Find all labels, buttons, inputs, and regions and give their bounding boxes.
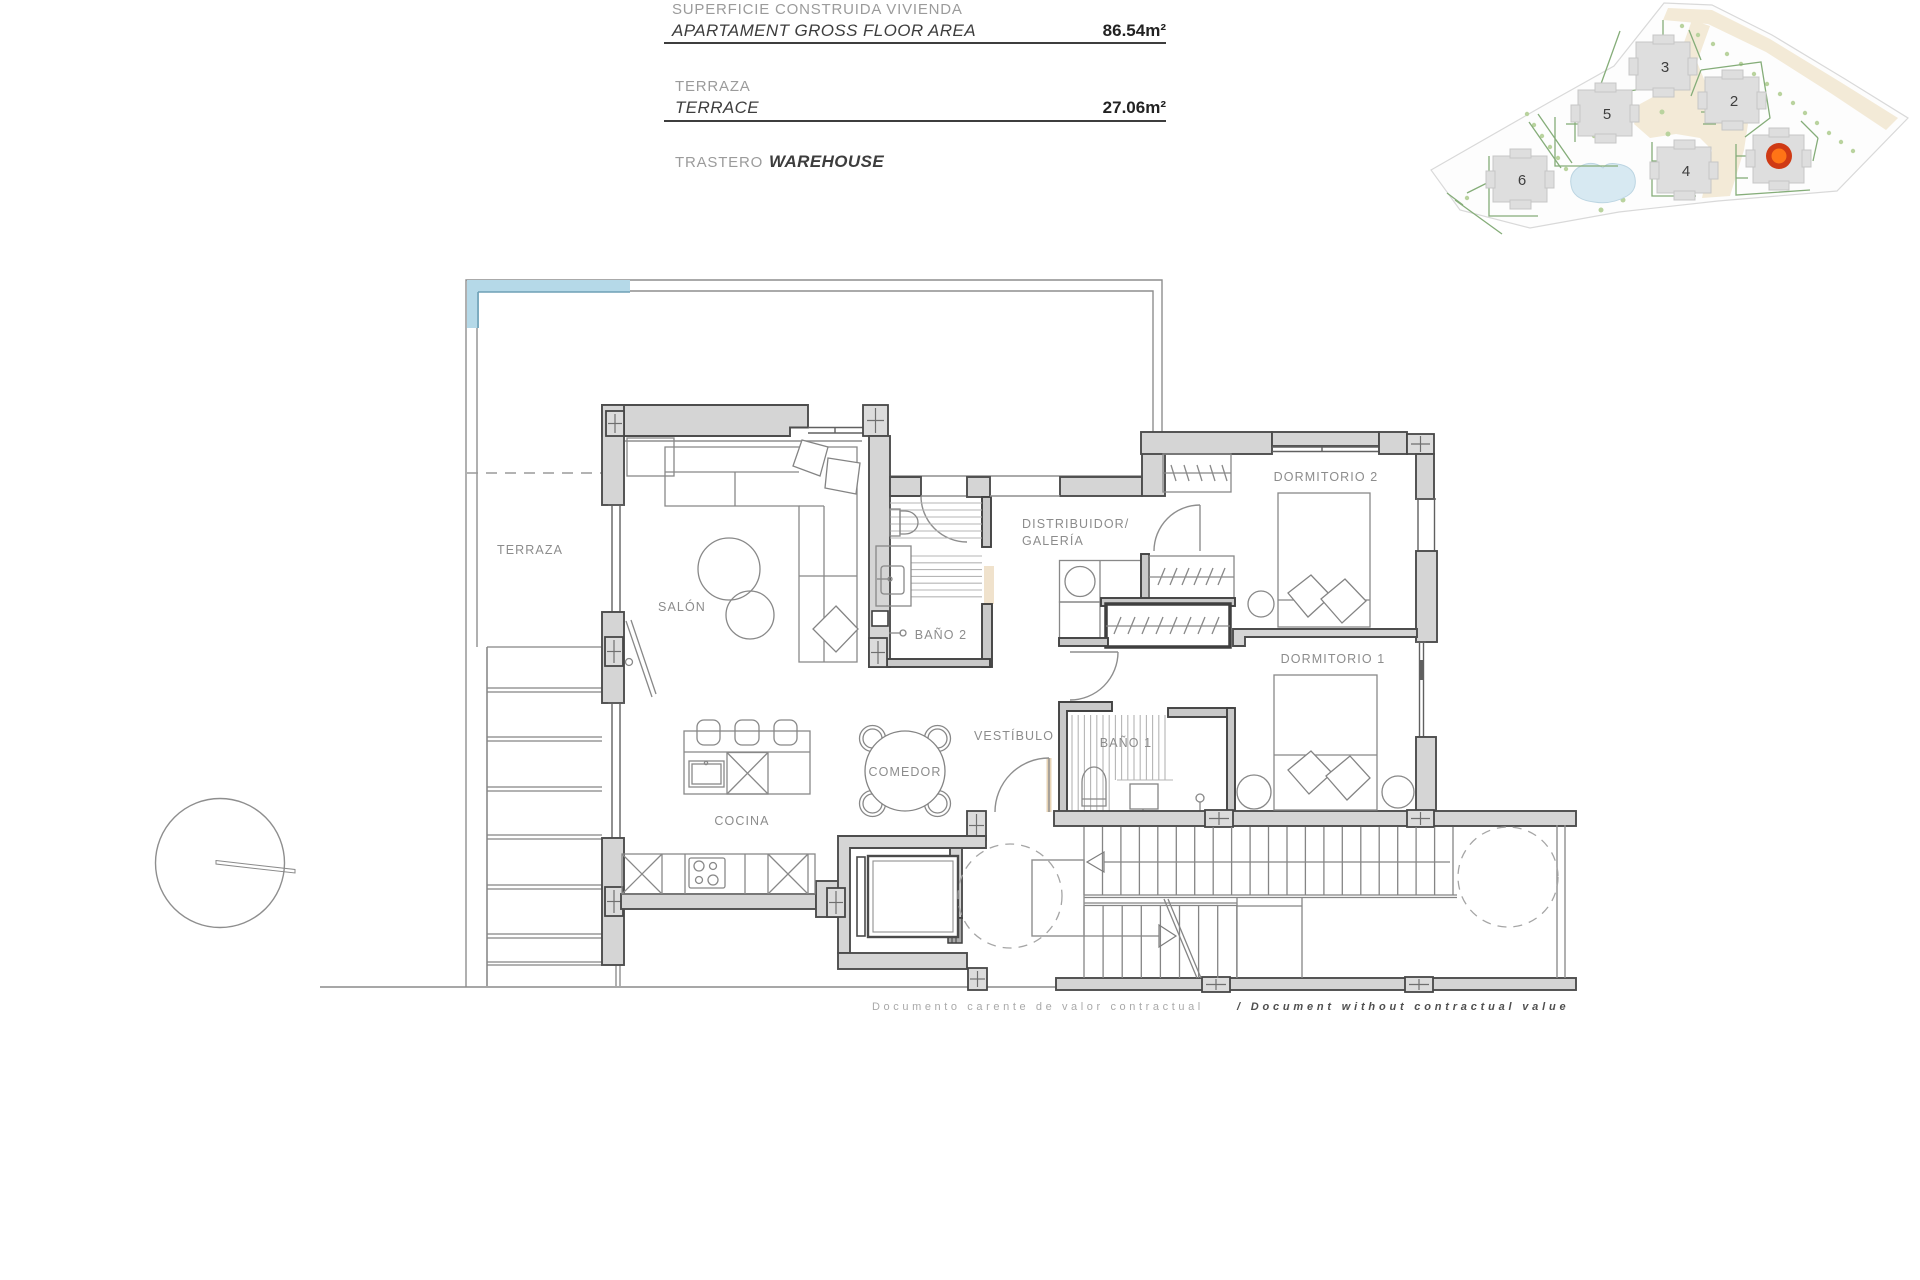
svg-text:DISTRIBUIDOR/: DISTRIBUIDOR/ (1022, 517, 1129, 531)
svg-text:27.06m²: 27.06m² (1103, 98, 1167, 117)
svg-text:/ Document without contractual: / Document without contractual value (1236, 1001, 1569, 1013)
svg-text:Documento carente de valor con: Documento carente de valor contractual (872, 1001, 1204, 1013)
svg-text:SALÓN: SALÓN (658, 599, 706, 614)
svg-text:SUPERFICIE CONSTRUIDA VIVIENDA: SUPERFICIE CONSTRUIDA VIVIENDA (672, 1, 963, 18)
svg-text:VESTÍBULO: VESTÍBULO (974, 728, 1054, 743)
svg-text:86.54m²: 86.54m² (1103, 21, 1167, 40)
svg-text:TRASTERO: TRASTERO (675, 154, 763, 171)
svg-text:3: 3 (1661, 59, 1669, 76)
svg-text:4: 4 (1682, 163, 1690, 180)
svg-text:6: 6 (1518, 172, 1526, 189)
svg-text:GALERÍA: GALERÍA (1022, 533, 1084, 548)
svg-text:APARTAMENT GROSS FLOOR AREA: APARTAMENT GROSS FLOOR AREA (671, 21, 976, 40)
svg-text:BAÑO 2: BAÑO 2 (915, 628, 967, 642)
svg-text:TERRACE: TERRACE (675, 98, 759, 117)
svg-text:COMEDOR: COMEDOR (869, 765, 942, 779)
svg-text:2: 2 (1730, 93, 1738, 110)
svg-text:WAREHOUSE: WAREHOUSE (769, 152, 884, 171)
svg-text:COCINA: COCINA (714, 814, 769, 828)
svg-text:TERRAZA: TERRAZA (675, 78, 751, 95)
svg-text:5: 5 (1603, 106, 1611, 123)
svg-text:TERRAZA: TERRAZA (497, 543, 563, 557)
svg-text:DORMITORIO 2: DORMITORIO 2 (1274, 470, 1379, 484)
svg-text:DORMITORIO 1: DORMITORIO 1 (1281, 652, 1386, 666)
svg-text:BAÑO 1: BAÑO 1 (1100, 736, 1152, 750)
